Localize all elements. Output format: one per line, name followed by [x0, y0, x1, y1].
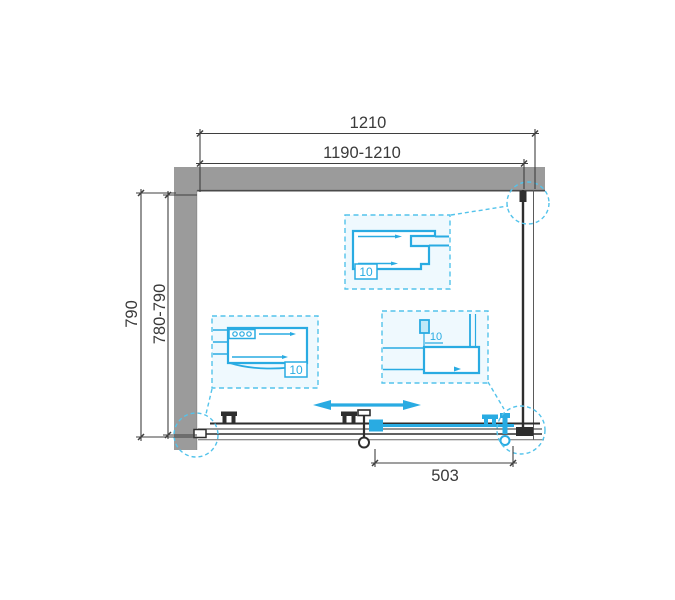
dim-value-side-outer: 790	[123, 300, 141, 328]
detail-box-wall-profile-right: 10	[345, 215, 450, 289]
door-handle-highlight	[369, 420, 383, 432]
cyan-bracket-cap	[500, 413, 510, 418]
cyan-roller-leg	[492, 419, 496, 426]
top-wall	[174, 167, 545, 190]
dim-value-top-adjustable: 1190-1210	[323, 144, 401, 162]
dim-value-top-outer: 1210	[350, 114, 387, 132]
cyan-knob-circle	[501, 436, 510, 445]
rail-section	[424, 347, 479, 373]
knob-circle	[359, 438, 369, 448]
detail-box-wall-profile-left: 10	[212, 316, 318, 388]
roller-leg	[343, 416, 347, 424]
dimension-door-opening	[371, 446, 517, 467]
detail-label: 10	[359, 265, 373, 279]
detail-box-bottom-rail: 10	[382, 311, 488, 383]
arrow-head-left	[313, 400, 331, 410]
fixed-glass-panel	[516, 190, 534, 440]
roller-top-plate	[221, 412, 237, 417]
roller-left	[221, 412, 237, 424]
roller-leg	[352, 416, 356, 424]
detail-dimension: 10	[430, 331, 442, 343]
left-wall	[174, 167, 197, 450]
left-wall-bracket	[194, 430, 206, 438]
arrow-head-right	[403, 400, 421, 410]
leader-line-top	[451, 206, 508, 215]
technical-drawing-canvas: 10 10 10	[0, 0, 675, 600]
cyan-roller-leg	[484, 419, 488, 426]
top-wall-clamp	[520, 191, 527, 202]
leader-line-left	[206, 389, 212, 414]
roller-top-plate	[341, 412, 357, 417]
cyan-roller-top-plate	[482, 415, 498, 420]
cyan-bracket-stem	[503, 418, 508, 434]
dim-value-side-adjustable: 780-790	[151, 284, 169, 345]
shower-enclosure-plan-drawing: 10 10 10	[0, 0, 675, 600]
roller-leg	[223, 416, 227, 424]
detail-label: 10	[289, 363, 303, 377]
dim-value-door-opening: 503	[431, 467, 459, 485]
roller-middle	[341, 412, 357, 424]
slide-direction-arrow	[313, 400, 421, 410]
roller-leg	[232, 416, 236, 424]
adjuster-fitting	[420, 320, 429, 333]
knob-cap	[358, 410, 370, 416]
leader-line-right	[488, 382, 504, 409]
